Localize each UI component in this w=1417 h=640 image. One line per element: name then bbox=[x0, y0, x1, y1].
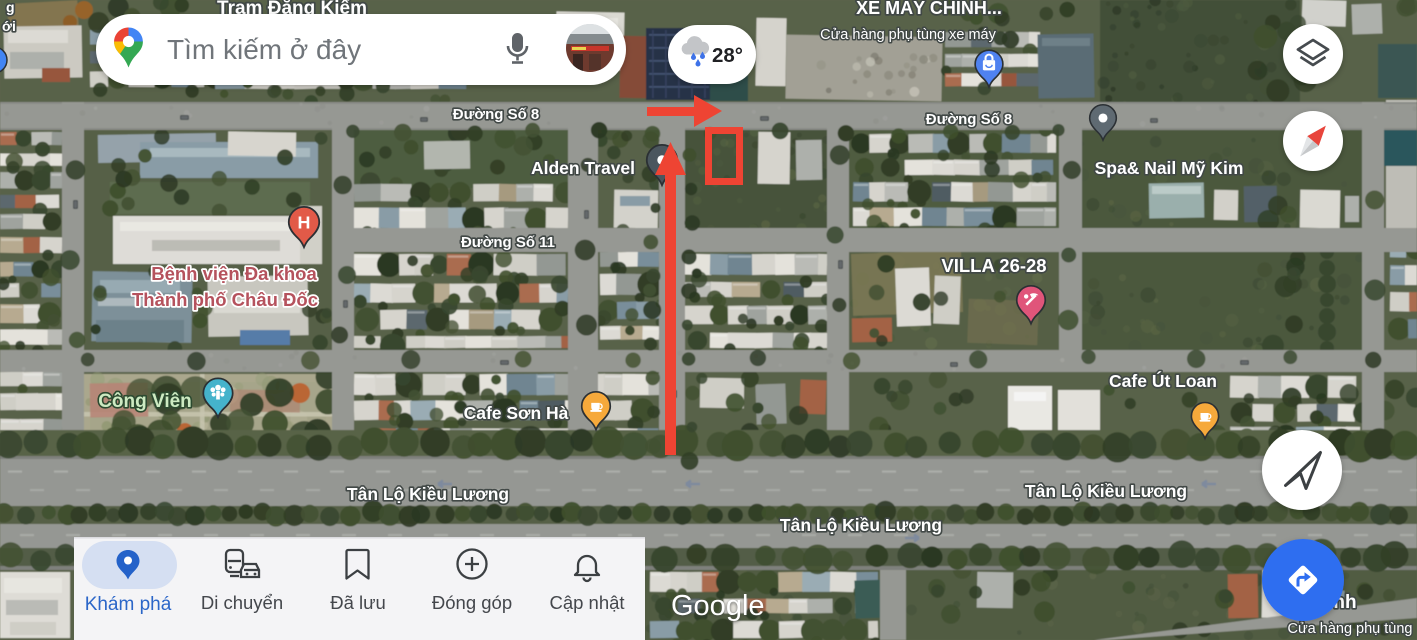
svg-text:Đường Số 8: Đường Số 8 bbox=[926, 111, 1013, 128]
svg-text:Cập nhật: Cập nhật bbox=[549, 592, 624, 613]
svg-text:Spa& Nail Mỹ Kim: Spa& Nail Mỹ Kim bbox=[1095, 158, 1244, 178]
svg-text:Cafe Sơn Hà: Cafe Sơn Hà bbox=[464, 403, 569, 423]
svg-text:Khám phá: Khám phá bbox=[85, 594, 172, 615]
svg-text:Alden Travel: Alden Travel bbox=[531, 158, 635, 178]
svg-text:Tân Lộ Kiều Lương: Tân Lộ Kiều Lương bbox=[780, 515, 942, 535]
svg-text:ới: ới bbox=[2, 18, 16, 34]
svg-text:VILLA 26-28: VILLA 26-28 bbox=[941, 255, 1046, 276]
svg-text:Đã lưu: Đã lưu bbox=[330, 592, 386, 613]
svg-text:Cửa hàng phụ tùng xe máy: Cửa hàng phụ tùng xe máy bbox=[820, 27, 997, 43]
svg-text:Tìm kiếm ở đây: Tìm kiếm ở đây bbox=[167, 34, 361, 65]
svg-text:28°: 28° bbox=[712, 44, 743, 67]
svg-text:Thành phố Châu Đốc: Thành phố Châu Đốc bbox=[132, 289, 318, 310]
svg-text:XE MÁY CHÍNH...: XE MÁY CHÍNH... bbox=[856, 0, 1002, 18]
svg-text:Cửa hàng phụ tùng: Cửa hàng phụ tùng bbox=[1288, 621, 1413, 637]
svg-text:Đóng góp: Đóng góp bbox=[432, 592, 512, 613]
svg-text:Di chuyển: Di chuyển bbox=[201, 592, 283, 613]
svg-text:Bệnh viện Đa khoa: Bệnh viện Đa khoa bbox=[151, 263, 317, 284]
svg-text:Tân Lộ Kiều Lương: Tân Lộ Kiều Lương bbox=[1025, 481, 1187, 501]
svg-text:g: g bbox=[6, 0, 15, 15]
svg-text:Tân Lộ Kiều Lương: Tân Lộ Kiều Lương bbox=[347, 484, 509, 504]
svg-text:H: H bbox=[298, 212, 311, 232]
svg-text:Đường Số 11: Đường Số 11 bbox=[461, 234, 555, 251]
svg-text:Đường Số 8: Đường Số 8 bbox=[453, 106, 540, 123]
svg-text:Cafe Út Loan: Cafe Út Loan bbox=[1109, 370, 1217, 391]
svg-text:Google: Google bbox=[671, 590, 765, 622]
svg-text:Công Viên: Công Viên bbox=[98, 391, 192, 412]
